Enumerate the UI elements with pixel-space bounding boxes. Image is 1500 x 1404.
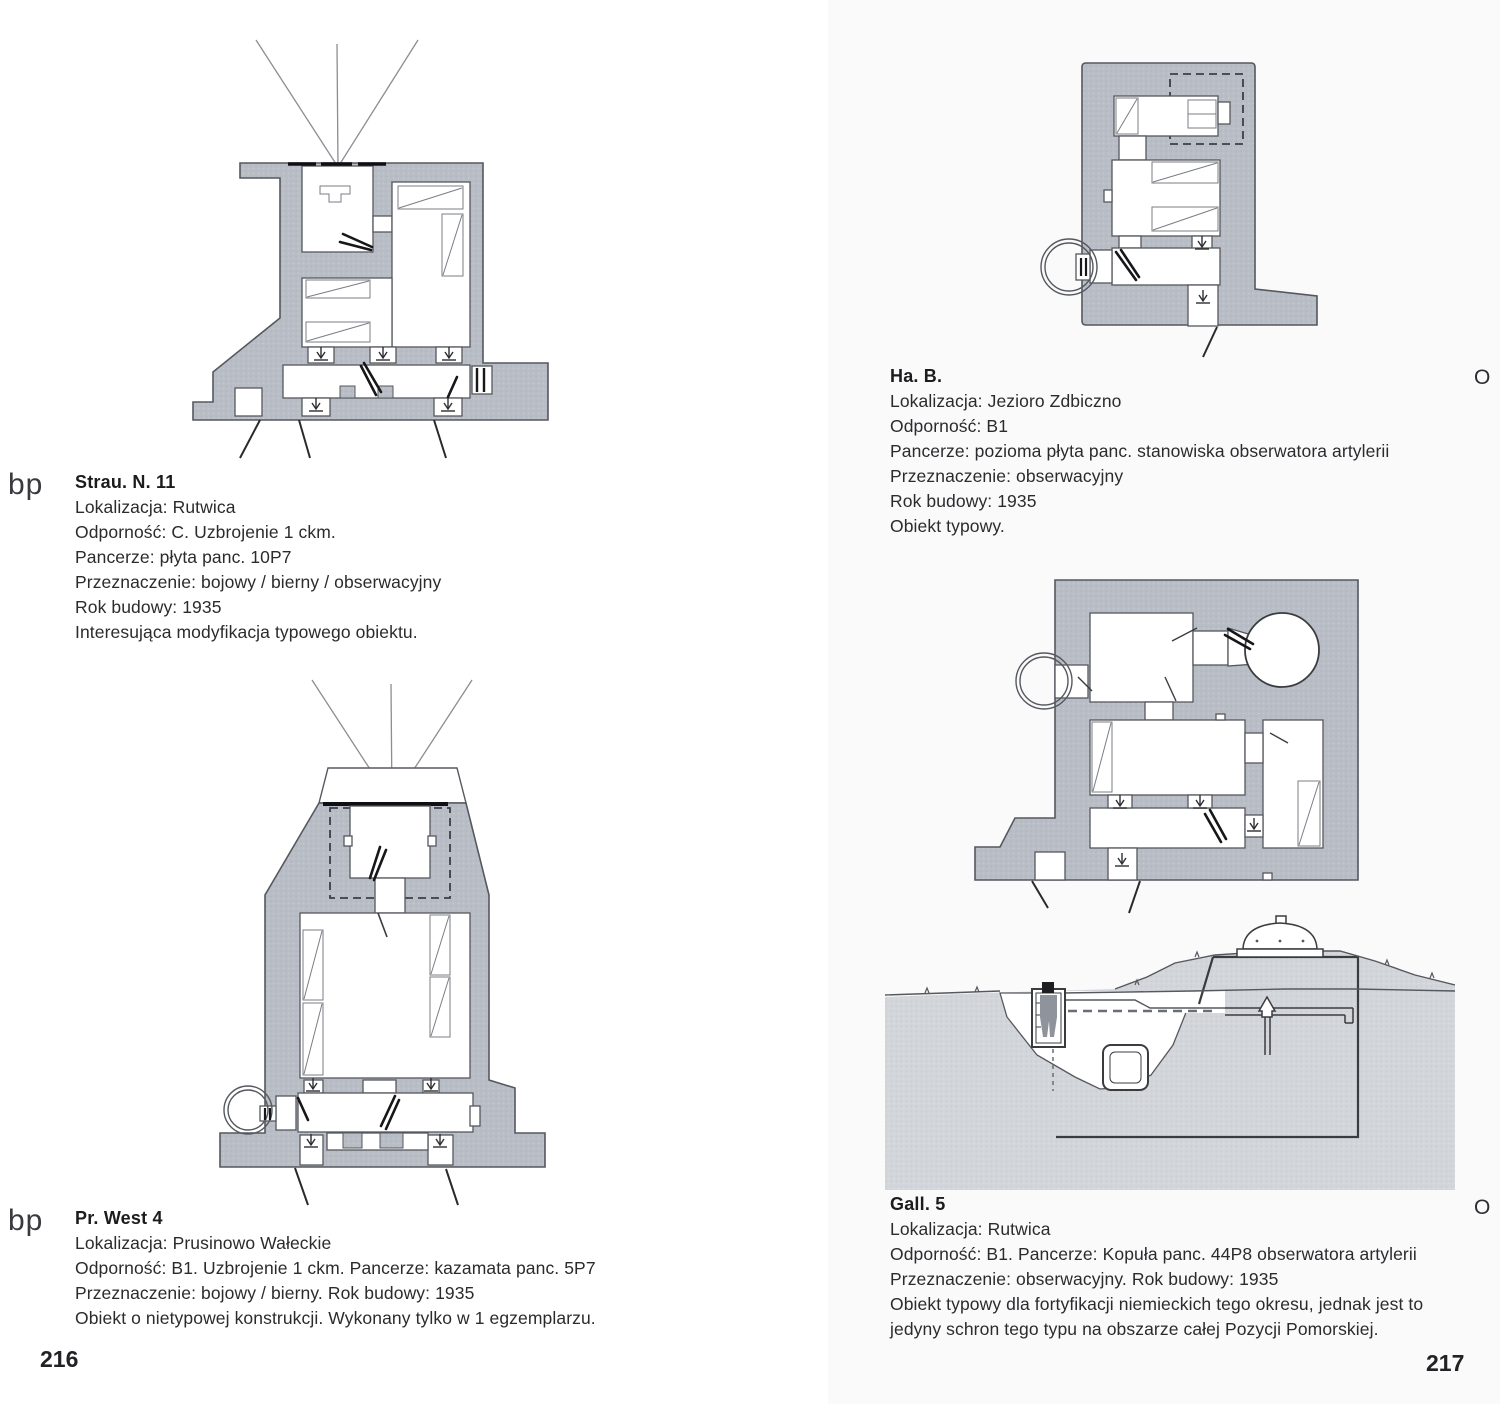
margin-label-bp-2: bp xyxy=(8,1204,43,1238)
entry-title: Strau. N. 11 xyxy=(75,470,695,495)
gall-5-terrain-section-diagram xyxy=(885,905,1455,1190)
bottom-leader-lines xyxy=(295,1168,458,1205)
margin-label-bp-1: bp xyxy=(8,468,43,502)
entry-line: Obiekt typowy dla fortyfikacji niemiecki… xyxy=(890,1292,1470,1317)
entry-line: Odporność: C. Uzbrojenie 1 ckm. xyxy=(75,520,695,545)
entry-ha-b: Ha. B. Lokalizacja: Jezioro Zdbiczno Odp… xyxy=(890,364,1470,539)
entry-title: Ha. B. xyxy=(890,364,1470,389)
roof-plate xyxy=(319,768,466,803)
margin-label-o-1: O xyxy=(1474,366,1490,390)
entry-pr-west-4: Pr. West 4 Lokalizacja: Prusinowo Wałeck… xyxy=(75,1206,695,1331)
armored-hatch xyxy=(1103,1045,1148,1090)
entry-line: Przeznaczenie: bojowy / bierny / obserwa… xyxy=(75,570,695,595)
entry-line: Przeznaczenie: bojowy / bierny. Rok budo… xyxy=(75,1281,695,1306)
entry-title: Pr. West 4 xyxy=(75,1206,695,1231)
entry-line: Obiekt o nietypowej konstrukcji. Wykonan… xyxy=(75,1306,695,1331)
observation-cupola xyxy=(1245,613,1319,687)
entry-strau-n11: Strau. N. 11 Lokalizacja: Rutwica Odporn… xyxy=(75,470,695,645)
earth-mass xyxy=(885,951,1455,1190)
entry-line: Odporność: B1. Pancerze: Kopuła panc. 44… xyxy=(890,1242,1470,1267)
book-spread-scan: { "book": { "left_page": { "page_number"… xyxy=(0,0,1500,1404)
gall-5-bunker-plan-diagram xyxy=(960,565,1380,915)
entry-line: Rok budowy: 1935 xyxy=(890,489,1470,514)
entry-title: Gall. 5 xyxy=(890,1192,1470,1217)
entry-line: Przeznaczenie: obserwacyjny. Rok budowy:… xyxy=(890,1267,1470,1292)
page-number-right: 217 xyxy=(1426,1350,1464,1377)
ha-b-bunker-plan-diagram xyxy=(1040,40,1360,360)
entry-line: Obiekt typowy. xyxy=(890,514,1470,539)
entry-line: Interesująca modyfikacja typowego obiekt… xyxy=(75,620,695,645)
strau-n11-bunker-plan-diagram xyxy=(180,20,600,460)
entry-line: Odporność: B1 xyxy=(890,414,1470,439)
bottom-leader-lines xyxy=(240,420,446,458)
entry-line: Pancerze: płyta panc. 10P7 xyxy=(75,545,695,570)
entry-gall-5: Gall. 5 Lokalizacja: Rutwica Odporność: … xyxy=(890,1192,1470,1342)
exit-leader-line xyxy=(1203,327,1217,357)
entry-line: Lokalizacja: Rutwica xyxy=(75,495,695,520)
entry-line: Lokalizacja: Rutwica xyxy=(890,1217,1470,1242)
entry-line: Rok budowy: 1935 xyxy=(75,595,695,620)
margin-label-o-2: O xyxy=(1474,1196,1490,1220)
entry-line: Pancerze: pozioma płyta panc. stanowiska… xyxy=(890,439,1470,464)
entry-line: Lokalizacja: Jezioro Zdbiczno xyxy=(890,389,1470,414)
armored-cupola xyxy=(1237,916,1323,957)
page-number-left: 216 xyxy=(40,1346,78,1373)
pr-west-4-bunker-plan-diagram xyxy=(180,660,600,1220)
entry-line: Lokalizacja: Prusinowo Wałeckie xyxy=(75,1231,695,1256)
entry-line: jedyny schron tego typu na obszarze całe… xyxy=(890,1317,1470,1342)
entry-line: Przeznaczenie: obserwacyjny xyxy=(890,464,1470,489)
entry-line: Odporność: B1. Uzbrojenie 1 ckm. Pancerz… xyxy=(75,1256,695,1281)
